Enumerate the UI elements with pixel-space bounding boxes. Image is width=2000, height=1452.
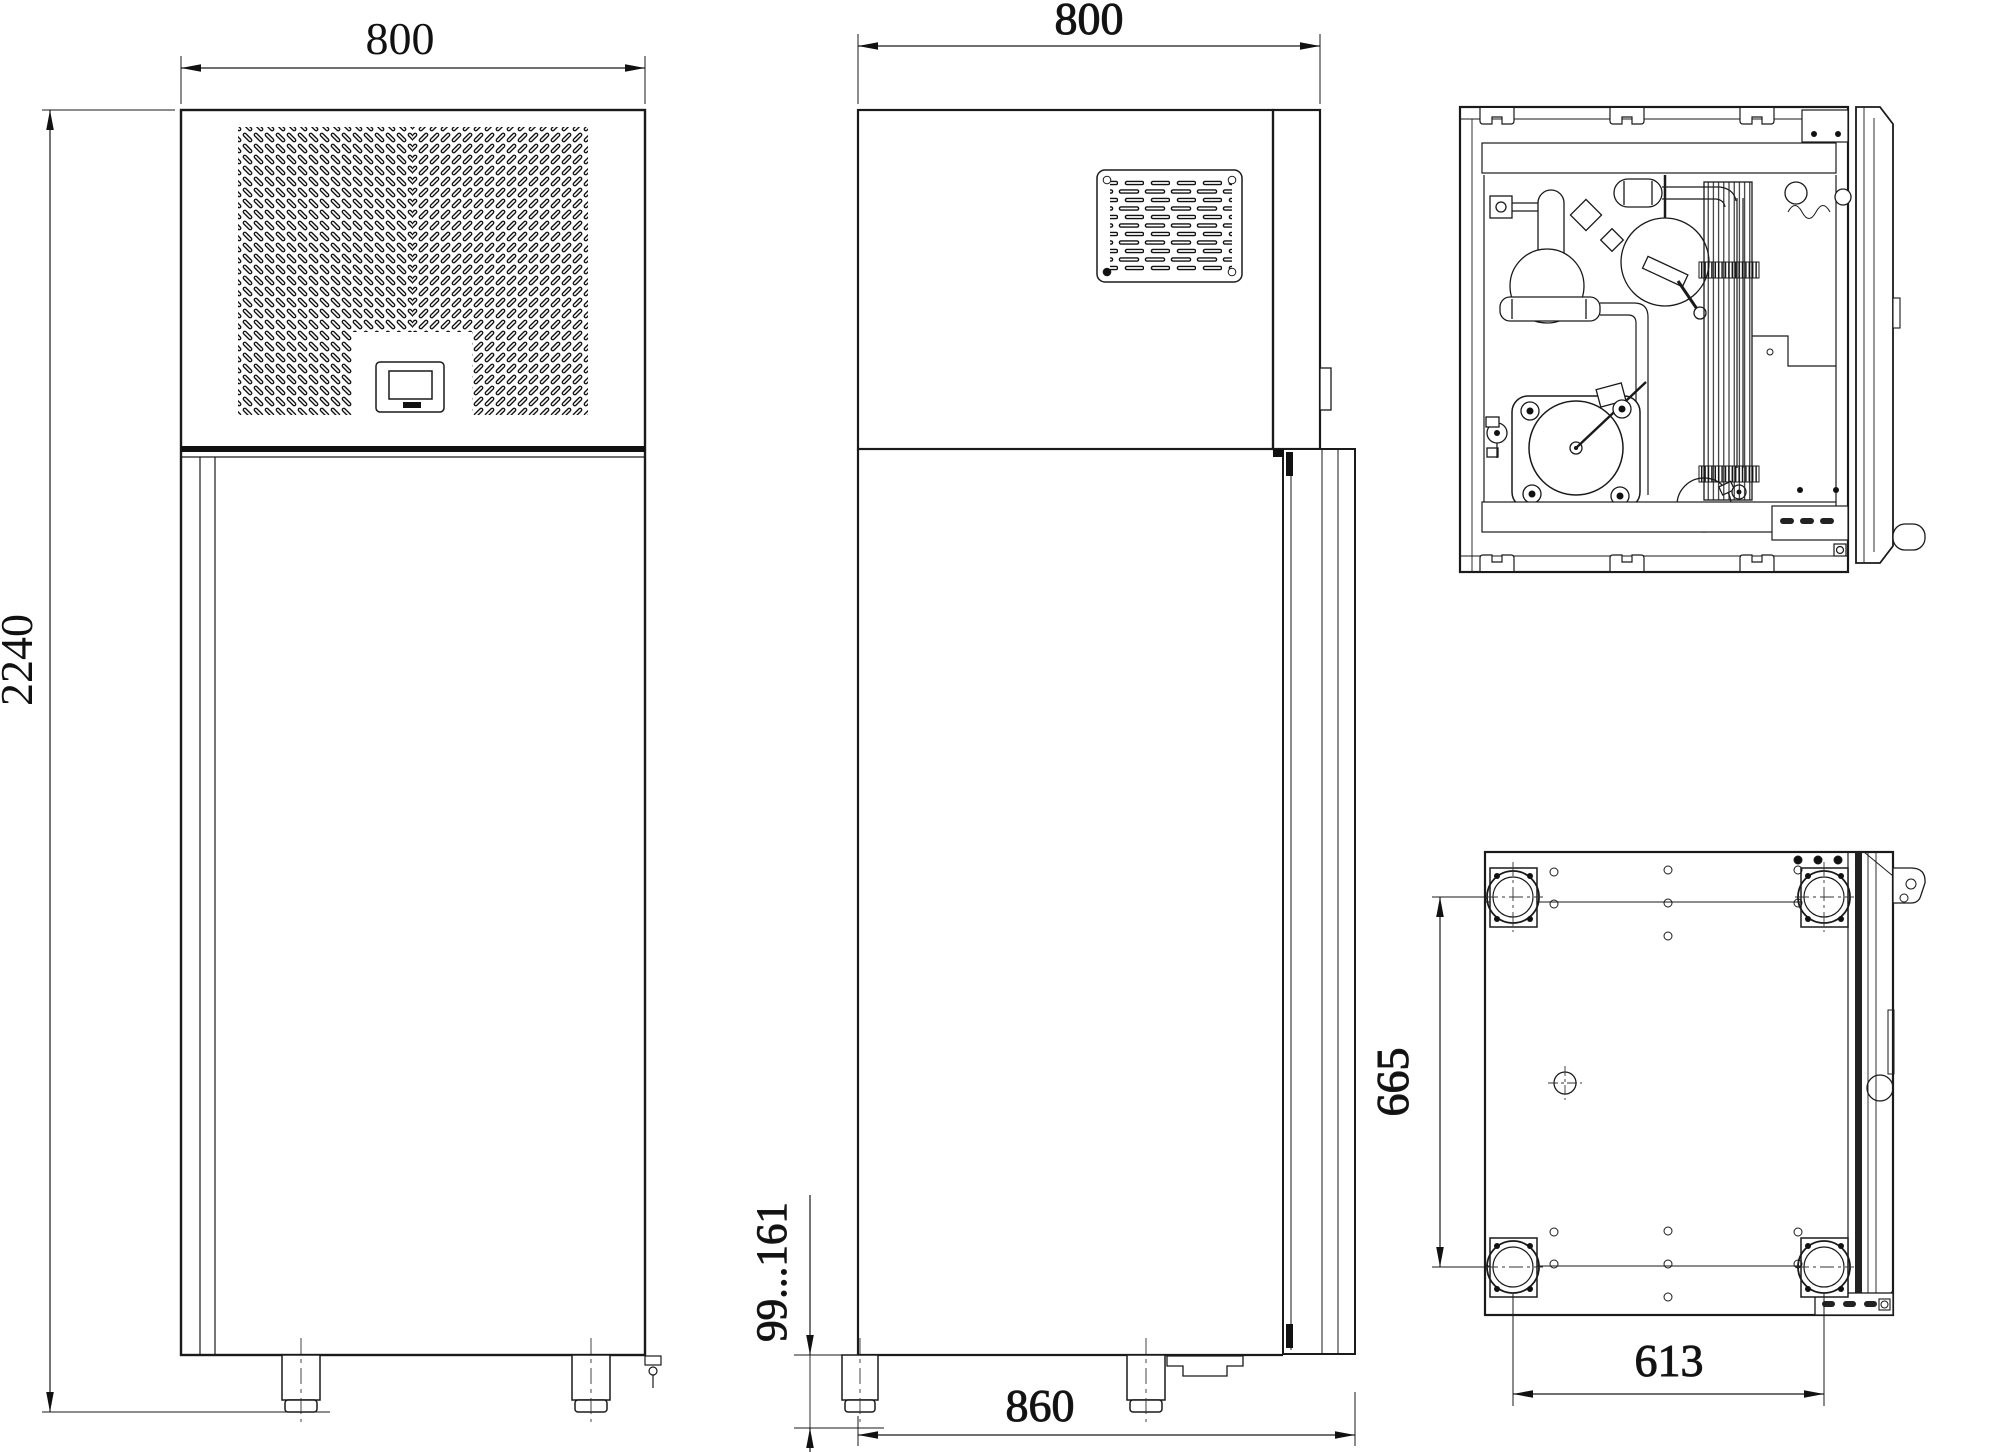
dim-side-depth: 800 bbox=[1055, 0, 1124, 44]
top-rail-rear bbox=[1482, 143, 1836, 173]
dim-foot-height: 99...161 bbox=[749, 1202, 796, 1342]
side-vent-grille bbox=[1097, 170, 1242, 282]
filter-drier bbox=[1614, 179, 1662, 207]
grille-screw-icon bbox=[1103, 268, 1111, 276]
dim-foot-spacing-depth: 665 bbox=[1367, 1048, 1418, 1117]
dim-foot-spacing-width: 613 bbox=[1635, 1335, 1704, 1386]
dim-front-width: 800 bbox=[366, 13, 435, 64]
display-screen bbox=[389, 371, 432, 399]
bottom-foot-plate-bl bbox=[1484, 1238, 1543, 1297]
muffler bbox=[1500, 297, 1600, 321]
top-door-handle bbox=[1893, 524, 1925, 550]
grille-screw-icon bbox=[1228, 176, 1236, 184]
bottom-foot-plate-br bbox=[1795, 1238, 1854, 1297]
grille-screw-icon bbox=[1228, 268, 1236, 276]
compressor bbox=[1512, 382, 1646, 508]
side-bezel-latch bbox=[1320, 368, 1331, 410]
bottom-foot-plate-tr bbox=[1795, 862, 1854, 932]
grille-screw-icon bbox=[1103, 176, 1111, 184]
bottom-hinge-bracket bbox=[1893, 868, 1925, 903]
top-door-hinge-tab bbox=[1893, 298, 1900, 328]
side-door bbox=[1273, 449, 1355, 1354]
compressor-dome bbox=[1621, 218, 1709, 306]
front-control-display bbox=[376, 362, 444, 412]
condenser bbox=[1699, 182, 1759, 500]
dim-front-height: 2240 bbox=[0, 614, 42, 706]
technical-drawing-sheet: 800 2240 bbox=[0, 0, 2000, 1452]
display-button bbox=[403, 402, 421, 408]
dim-total-depth: 860 bbox=[1006, 1380, 1075, 1431]
drawing-canvas: 800 2240 bbox=[0, 0, 2000, 1452]
front-separation-band bbox=[181, 446, 645, 452]
bottom-foot-plate-tl bbox=[1484, 862, 1543, 932]
